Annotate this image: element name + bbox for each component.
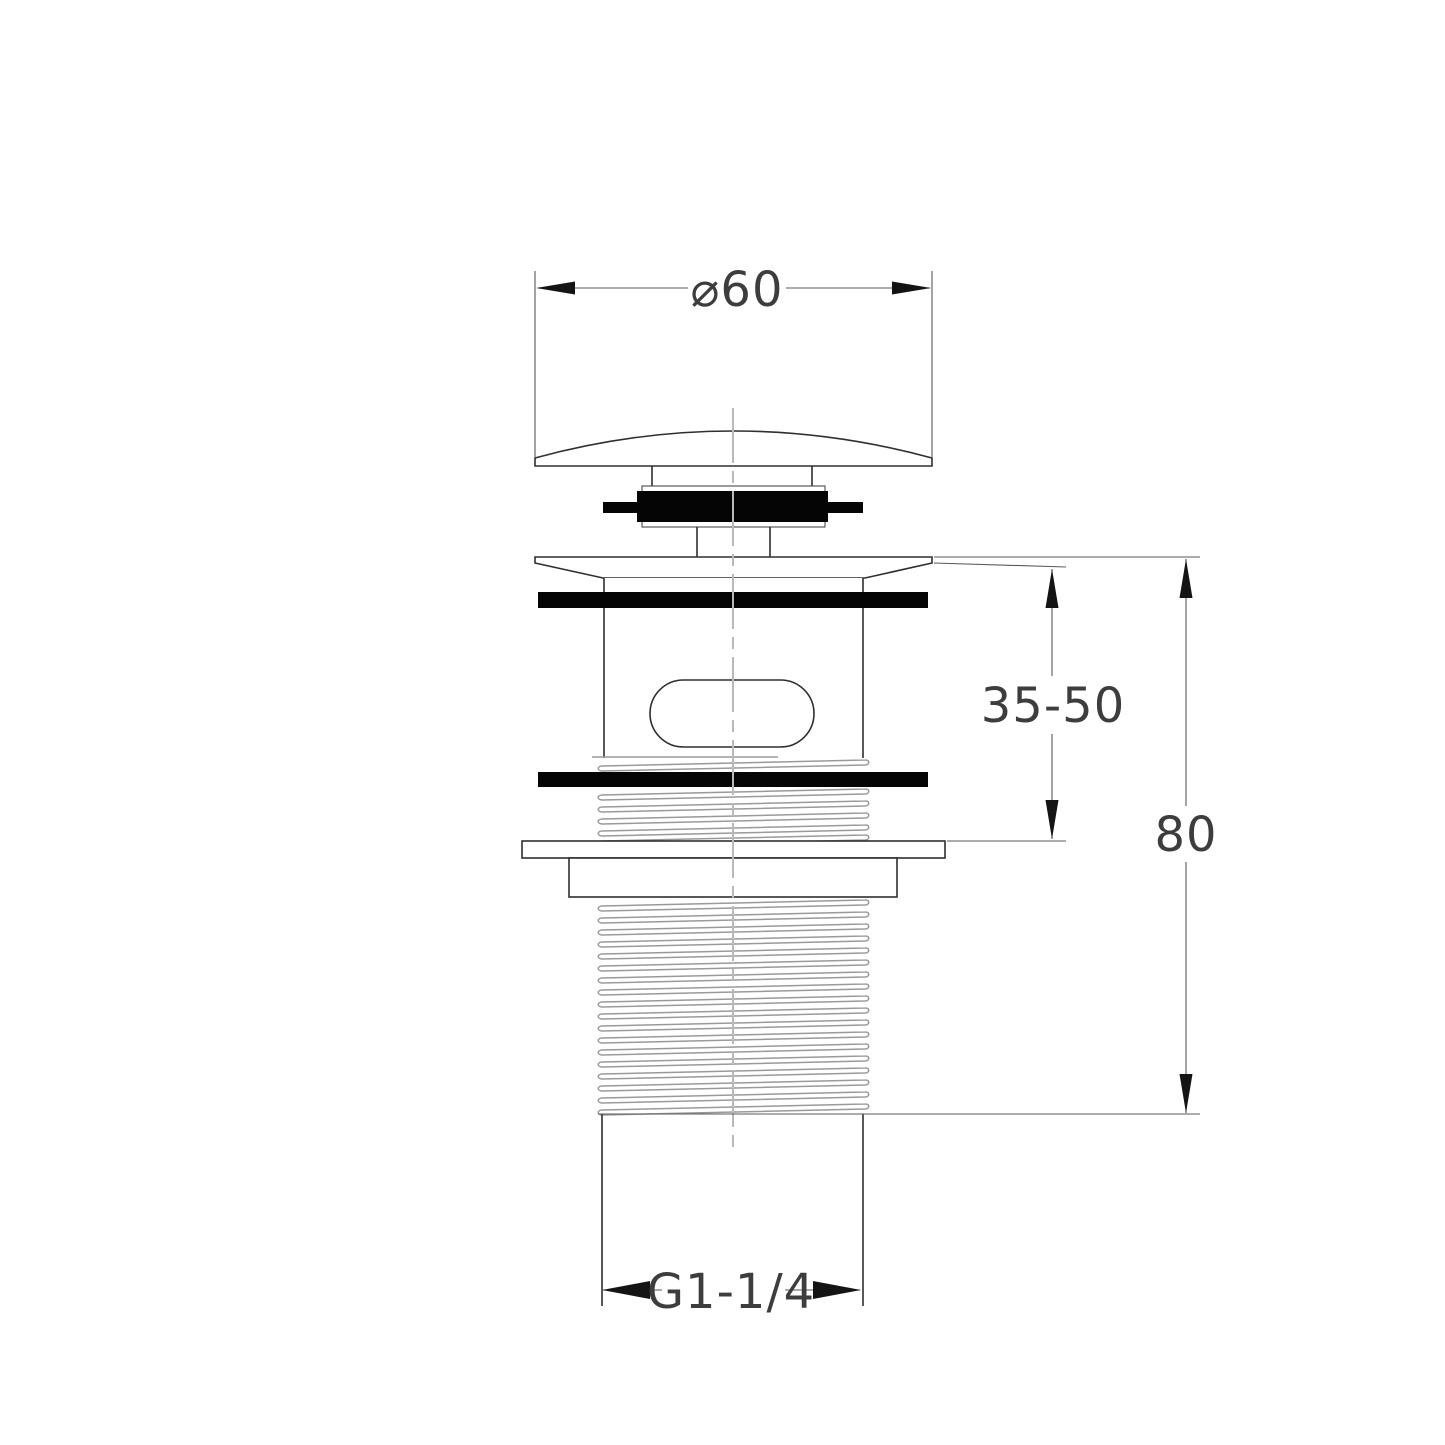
dim-label-adjustable-range: 35-50 bbox=[981, 678, 1125, 734]
dim-label-cap-diameter: ⌀60 bbox=[691, 262, 784, 318]
dim-label-thread-size: G1-1/4 bbox=[647, 1264, 815, 1320]
technical-drawing-page: ⌀60 35-50 80 G1-1/4 bbox=[0, 0, 1445, 1445]
pop-up-waste-drawing: ⌀60 35-50 80 G1-1/4 bbox=[0, 0, 1445, 1445]
dim-label-overall-height: 80 bbox=[1154, 807, 1217, 863]
